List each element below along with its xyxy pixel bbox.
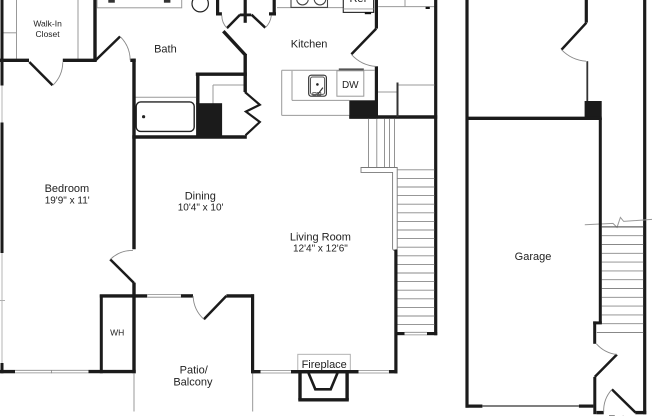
svg-text:19'9" x 11': 19'9" x 11' (45, 196, 90, 207)
svg-text:Bath: Bath (154, 44, 177, 56)
svg-text:DW: DW (342, 80, 359, 91)
svg-text:Walk-In: Walk-In (33, 19, 62, 29)
svg-text:Bedroom: Bedroom (45, 183, 90, 195)
svg-text:Balcony: Balcony (173, 377, 213, 389)
svg-text:Patio/: Patio/ (180, 365, 209, 377)
svg-text:WH: WH (110, 327, 124, 337)
svg-text:Kitchen: Kitchen (291, 38, 328, 50)
svg-text:Living Room: Living Room (290, 231, 351, 243)
svg-text:10'4" x 10': 10'4" x 10' (178, 203, 224, 214)
svg-text:Fireplace: Fireplace (302, 359, 347, 371)
svg-text:Closet: Closet (36, 29, 61, 39)
svg-text:Ref: Ref (349, 0, 367, 5)
svg-text:12'4" x 12'6": 12'4" x 12'6" (293, 244, 348, 255)
svg-text:Garage: Garage (515, 251, 552, 263)
svg-text:Dining: Dining (185, 191, 216, 203)
